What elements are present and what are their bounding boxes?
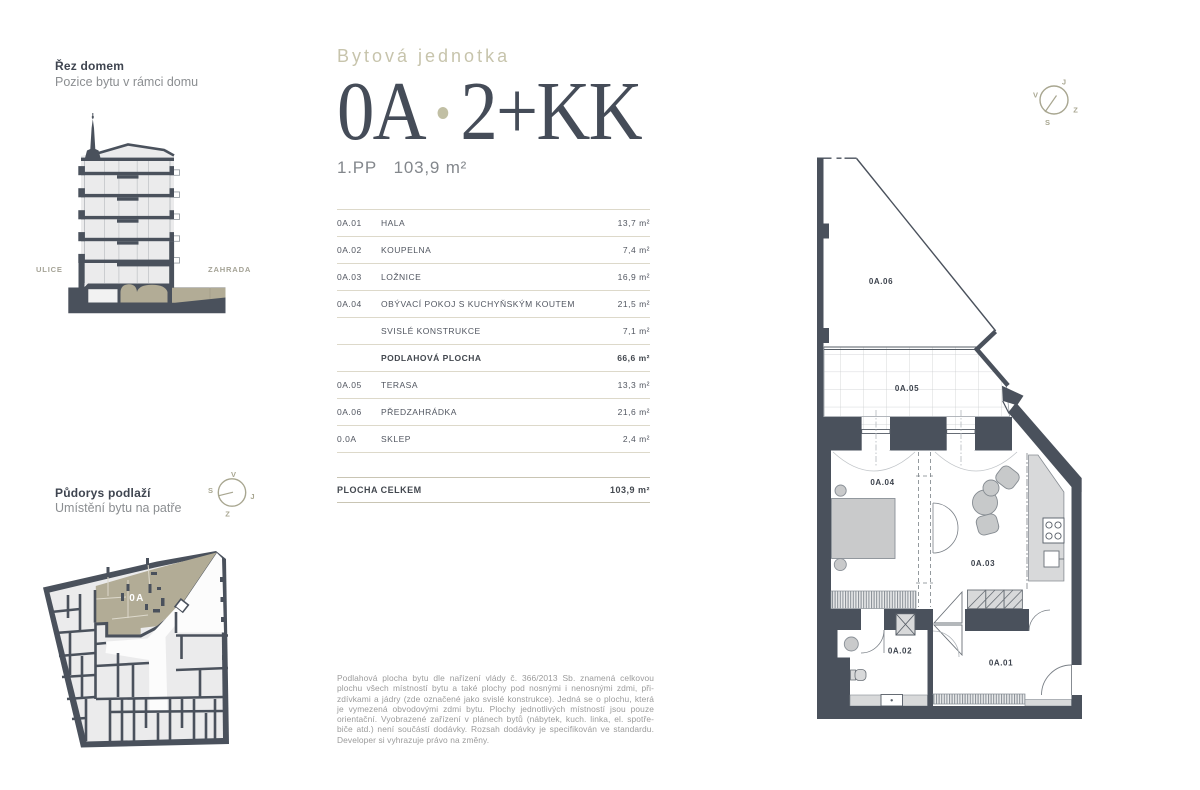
svg-text:S: S [208, 486, 213, 495]
svg-text:0A.01: 0A.01 [989, 659, 1013, 668]
svg-text:0A.02: 0A.02 [888, 647, 912, 656]
svg-text:0A.04: 0A.04 [870, 478, 894, 487]
svg-text:S: S [1045, 118, 1050, 127]
svg-text:Z: Z [225, 510, 230, 519]
svg-text:0A.03: 0A.03 [971, 559, 995, 568]
svg-text:V: V [1033, 91, 1038, 100]
svg-text:0A: 0A [129, 593, 145, 604]
svg-text:J: J [1062, 78, 1066, 87]
svg-text:J: J [250, 492, 254, 501]
svg-text:Z: Z [1073, 106, 1078, 115]
svg-text:ULICE: ULICE [36, 265, 63, 274]
svg-text:0A.06: 0A.06 [869, 277, 893, 286]
svg-text:ZAHRADA: ZAHRADA [208, 265, 251, 274]
svg-text:0A.05: 0A.05 [895, 384, 919, 393]
svg-text:V: V [231, 470, 236, 479]
